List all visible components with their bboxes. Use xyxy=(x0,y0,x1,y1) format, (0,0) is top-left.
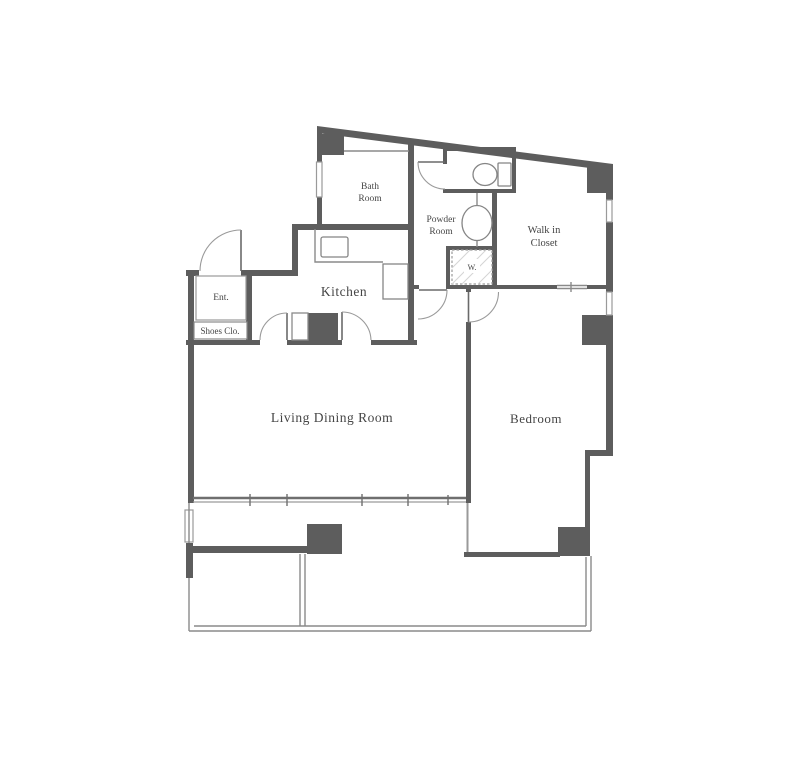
floor-plan-page: Bath Room Powder Room Walk in Closet Kit… xyxy=(0,0,800,761)
closet-opening xyxy=(557,282,587,292)
kitchen-label: Kitchen xyxy=(321,284,367,299)
structural-pillars xyxy=(307,134,613,556)
living-room-window-band xyxy=(193,494,466,506)
kitchen-wall-stub xyxy=(292,313,308,340)
pillar-northeast xyxy=(587,166,613,193)
pillar-balcony xyxy=(307,524,342,554)
hall-door xyxy=(260,313,287,340)
balcony-wall xyxy=(191,546,307,553)
toilet-tank xyxy=(498,163,511,186)
powder-room-label-1: Powder xyxy=(426,215,456,225)
walk-in-closet-label-1: Walk in xyxy=(528,225,561,236)
shoes-closet-label: Shoes Clo. xyxy=(200,326,239,336)
floor-plan-drawing: Bath Room Powder Room Walk in Closet Kit… xyxy=(0,0,800,761)
pillar-east-mid xyxy=(582,315,613,345)
living-dining-room-label: Living Dining Room xyxy=(271,410,393,425)
entrance-label: Ent. xyxy=(213,293,229,303)
toilet-door xyxy=(418,162,445,189)
bath-window xyxy=(317,162,323,197)
washer-label: W. xyxy=(468,263,477,272)
pillar-northwest xyxy=(317,134,344,155)
bath-room-label-1: Bath xyxy=(361,182,379,192)
windows xyxy=(185,162,612,552)
bedroom-window xyxy=(607,292,613,315)
washbasin xyxy=(462,206,492,241)
kitchen-sink xyxy=(321,237,348,257)
bedroom-door xyxy=(469,292,499,322)
entrance-door xyxy=(200,230,241,271)
walk-in-closet-label-2: Closet xyxy=(531,238,558,249)
interior-walls xyxy=(186,140,613,503)
kitchen-stove xyxy=(383,264,408,299)
bedroom-label: Bedroom xyxy=(510,411,562,426)
bath-room-label-2: Room xyxy=(358,194,382,204)
kitchen-door xyxy=(342,312,371,340)
pillar-kitchen-south xyxy=(308,313,338,340)
toilet-bowl xyxy=(473,164,497,186)
powder-room-label-2: Room xyxy=(429,227,453,237)
room-labels: Bath Room Powder Room Walk in Closet Kit… xyxy=(200,182,561,426)
powder-room-door xyxy=(418,290,447,319)
pillar-southeast xyxy=(558,527,590,556)
balcony xyxy=(186,503,591,631)
closet-window xyxy=(607,200,613,222)
